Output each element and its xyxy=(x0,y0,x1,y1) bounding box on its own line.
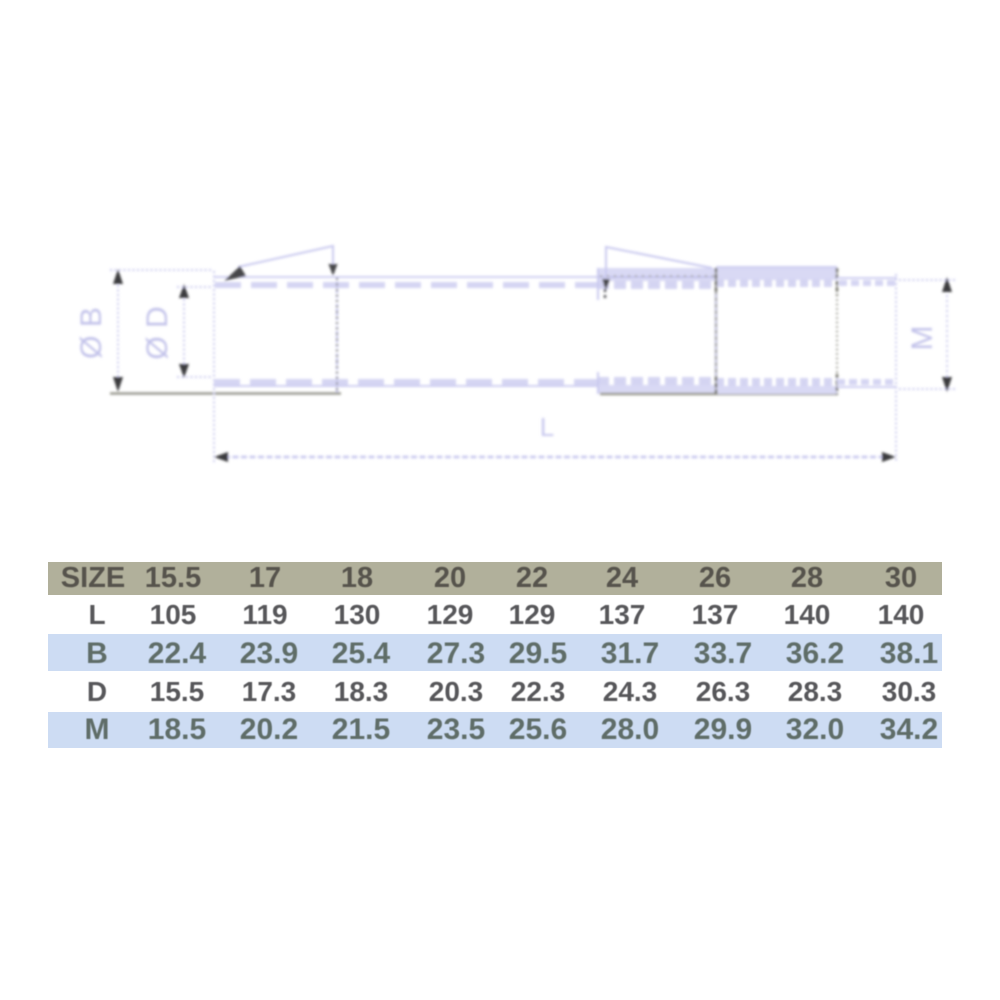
svg-text:Ø D: Ø D xyxy=(141,306,174,359)
svg-text:L: L xyxy=(540,412,554,442)
svg-text:M: M xyxy=(906,326,939,351)
svg-text:Ø B: Ø B xyxy=(75,307,108,359)
